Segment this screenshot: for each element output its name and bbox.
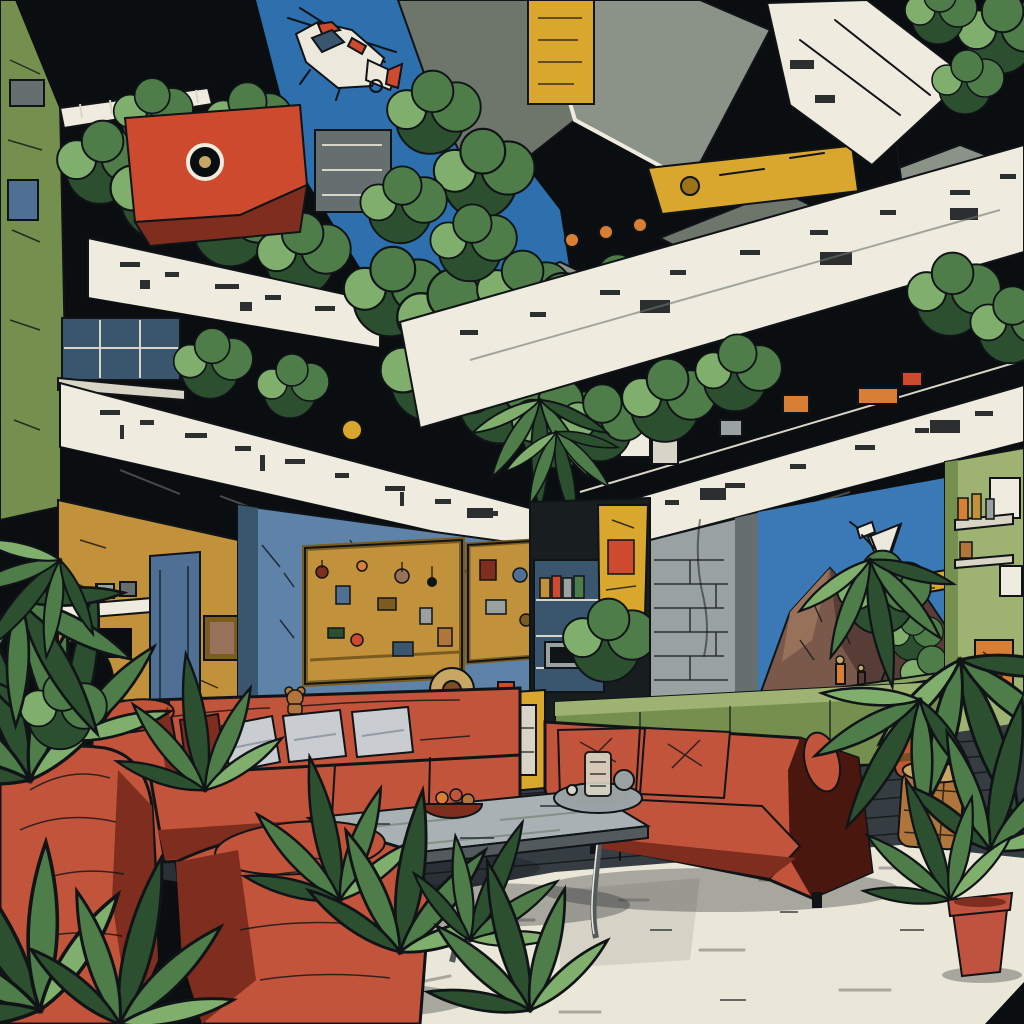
planter-pot — [633, 218, 647, 232]
illustration-canvas — [0, 0, 1024, 1024]
planter-pot — [599, 225, 613, 239]
yellow-signboard — [528, 0, 594, 104]
planter-pot — [565, 233, 579, 247]
pegboard-large — [305, 540, 462, 684]
hanging-gourd — [342, 420, 362, 440]
red-awning — [125, 105, 307, 246]
teddy-bear — [285, 687, 305, 714]
courtyard-scene — [0, 0, 1024, 1024]
gilt-painting — [204, 616, 240, 660]
